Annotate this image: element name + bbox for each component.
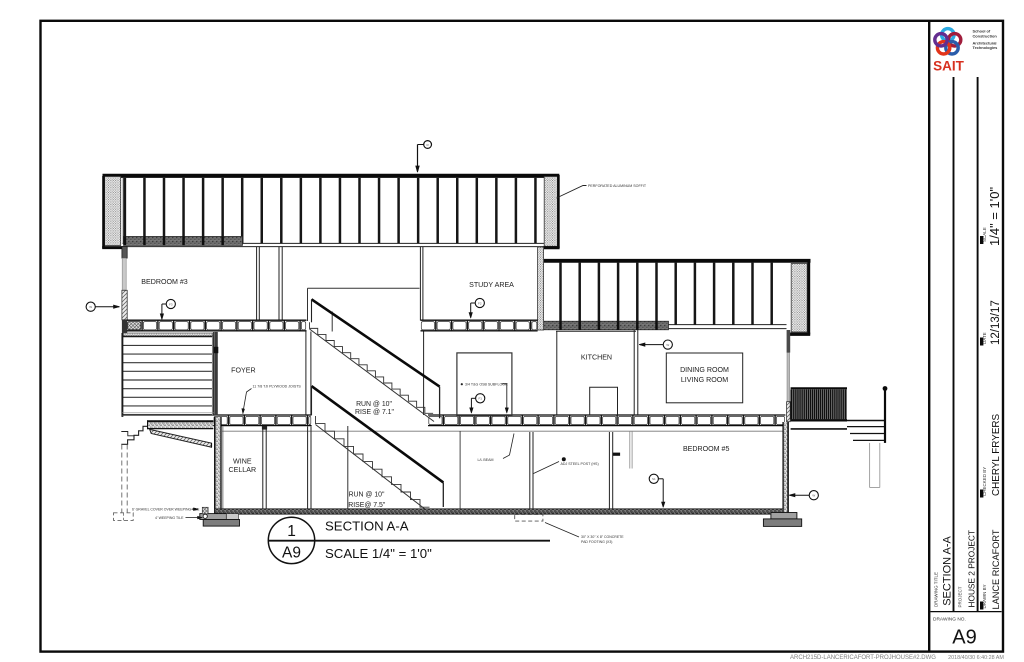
svg-text:DRAWING NO.: DRAWING NO. [933, 617, 966, 623]
svg-text:A9: A9 [952, 627, 976, 649]
svg-text:STUDY AREA: STUDY AREA [469, 281, 514, 289]
svg-text:PERFORATED ALUMINUM SOFFIT: PERFORATED ALUMINUM SOFFIT [588, 184, 647, 188]
svg-text:1: 1 [287, 523, 296, 540]
svg-text:1/4" = 1'0": 1/4" = 1'0" [987, 187, 1002, 246]
svg-text:BEDROOM #3: BEDROOM #3 [141, 278, 188, 286]
svg-text:RUN @ 10": RUN @ 10" [356, 401, 392, 408]
svg-text:RISE@ 7.5": RISE@ 7.5" [348, 502, 386, 509]
svg-text:BEDROOM #5: BEDROOM #5 [683, 445, 730, 453]
svg-text:RUN @ 10": RUN @ 10" [349, 492, 385, 499]
svg-text:30" X 30" X 8" CONCRETE: 30" X 30" X 8" CONCRETE [581, 535, 624, 539]
svg-text:DINING ROOM: DINING ROOM [680, 366, 729, 374]
svg-text:PAD FOOTING (X3): PAD FOOTING (X3) [581, 540, 612, 544]
svg-text:FOYER: FOYER [231, 366, 255, 374]
svg-text:W: W [89, 305, 92, 309]
svg-text:SECTION A-A: SECTION A-A [942, 535, 954, 605]
svg-text:2018/40/30 6:40:28 AM: 2018/40/30 6:40:28 AM [948, 655, 1004, 661]
svg-text:S1: S1 [652, 477, 656, 481]
svg-text:LIVING ROOM: LIVING ROOM [681, 376, 728, 384]
svg-text:W: W [812, 494, 815, 498]
svg-text:W: W [666, 343, 669, 347]
svg-text:F3: F3 [169, 302, 173, 306]
svg-text:A9: A9 [282, 545, 301, 562]
svg-text:SAIT: SAIT [933, 59, 965, 74]
svg-text:3/4 T&G OSB SUBFLOOR: 3/4 T&G OSB SUBFLOOR [465, 383, 508, 387]
svg-text:4' WEEPING TILE: 4' WEEPING TILE [155, 516, 184, 520]
svg-text:F1: F1 [478, 397, 482, 401]
svg-text:F2: F2 [478, 301, 482, 305]
svg-text:HOUSE 2 PROJECT: HOUSE 2 PROJECT [967, 530, 977, 607]
svg-text:L/L BEAM: L/L BEAM [478, 458, 494, 462]
svg-text:Construction: Construction [973, 33, 998, 38]
svg-text:CHECKED BY: CHECKED BY [982, 467, 987, 496]
svg-text:DRAWING TITLE: DRAWING TITLE [934, 572, 939, 607]
svg-text:KITCHEN: KITCHEN [581, 353, 612, 361]
svg-text:12/13/17: 12/13/17 [990, 300, 1002, 345]
svg-text:Technologies: Technologies [973, 45, 998, 50]
svg-text:DATE: DATE [982, 332, 987, 344]
svg-text:WINE: WINE [233, 458, 252, 466]
svg-text:CELLAR: CELLAR [228, 466, 256, 474]
svg-text:RISE @ 7.1": RISE @ 7.1" [355, 409, 394, 416]
svg-text:SCALE 1/4" = 1'0": SCALE 1/4" = 1'0" [325, 546, 432, 561]
svg-text:SECTION A-A: SECTION A-A [325, 518, 409, 533]
svg-text:PROJECT: PROJECT [958, 586, 963, 607]
svg-text:CHERYL FRYERS: CHERYL FRYERS [991, 413, 1002, 496]
svg-text:ARCH215D-LANCERICAFORT-PROJHOU: ARCH215D-LANCERICAFORT-PROJHOUSE#2.DWG [790, 655, 936, 661]
svg-text:DRAWN BY: DRAWN BY [982, 584, 987, 608]
svg-text:LANCE RICAFORT: LANCE RICAFORT [991, 529, 1001, 609]
svg-text:11 7/8 TJI PLYWOOD JOISTS: 11 7/8 TJI PLYWOOD JOISTS [253, 384, 302, 388]
svg-text:ADJ STEEL POST (HS): ADJ STEEL POST (HS) [561, 462, 599, 466]
svg-text:6' GRAVEL COVER OVER WEEPING T: 6' GRAVEL COVER OVER WEEPING TILE [132, 507, 200, 511]
